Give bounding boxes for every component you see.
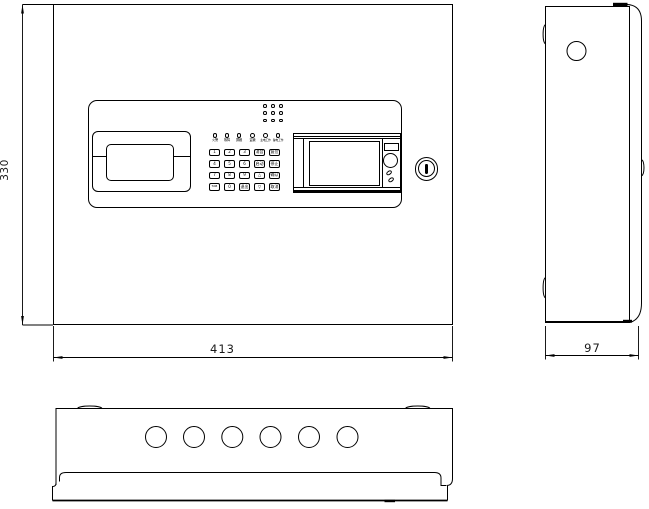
- engineering-drawing: 330 413 97: [0, 0, 649, 509]
- key-lock-slot: [425, 164, 427, 174]
- key-lock: [0, 0, 649, 509]
- front-view: 火警 故障 屏蔽 监管 主电工作 备电工作: [0, 0, 649, 509]
